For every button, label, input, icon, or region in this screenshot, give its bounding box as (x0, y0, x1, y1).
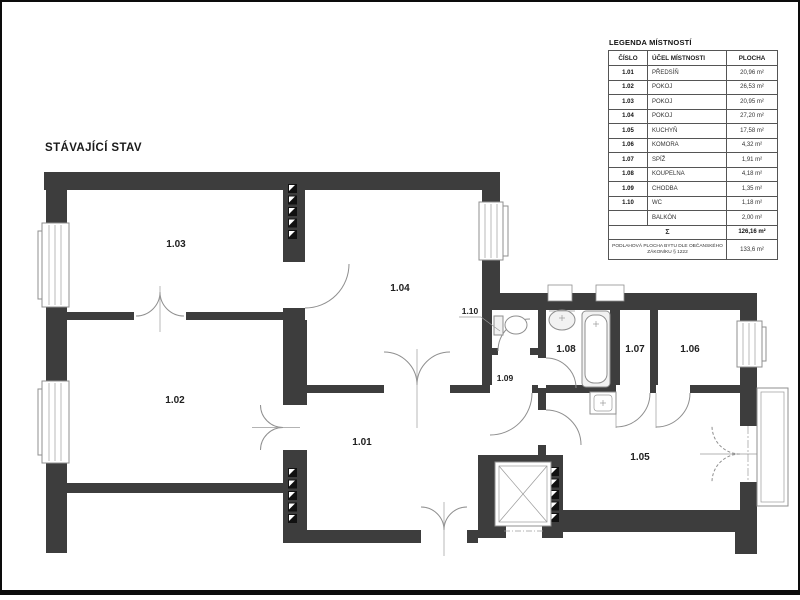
legend-row: 1.09 CHODBA 1,35 m² (609, 182, 778, 197)
room-label-103: 1.03 (166, 239, 186, 250)
room-label-105: 1.05 (630, 452, 650, 463)
legend-row: 1.08 KOUPELNA 4,18 m² (609, 167, 778, 182)
column-header-cislo: ČÍSLO (609, 51, 648, 66)
balcony-outline (757, 388, 788, 506)
wall-segment (538, 445, 546, 455)
window-icon (38, 223, 69, 307)
room-label-102: 1.02 (165, 395, 185, 406)
floorplan-page: STÁVAJÍCÍ STAV (0, 0, 800, 600)
footer-label: PODLAHOVÁ PLOCHA BYTU DLE OBČANSKÉHO ZÁK… (609, 240, 727, 260)
legend-sum-row: Σ 126,16 m² (609, 225, 778, 240)
chimney-flue-icon (288, 184, 297, 239)
legend-header-row: ČÍSLO ÚČEL MÍSTNOSTI PLOCHA (609, 51, 778, 66)
column-header-plocha: PLOCHA (727, 51, 778, 66)
sum-label: Σ (609, 225, 727, 240)
room-label-108: 1.08 (556, 344, 576, 355)
bathtub-icon (582, 311, 610, 387)
room-label-107: 1.07 (625, 344, 645, 355)
room-label-106: 1.06 (680, 344, 700, 355)
room-label-110: 1.10 (462, 306, 479, 316)
wall-segment (650, 310, 658, 393)
legend-row: BALKÓN 2,00 m² (609, 211, 778, 226)
legend-row: 1.01 PŘEDSÍŇ 20,96 m² (609, 66, 778, 81)
legend-table: ČÍSLO ÚČEL MÍSTNOSTI PLOCHA 1.01 PŘEDSÍŇ… (608, 50, 778, 260)
legend-footer-row: PODLAHOVÁ PLOCHA BYTU DLE OBČANSKÉHO ZÁK… (609, 240, 778, 260)
kitchen-sink-icon (590, 392, 616, 414)
elevator-icon (495, 462, 551, 531)
window-icon (38, 381, 69, 463)
legend-row: 1.10 WC 1,18 m² (609, 196, 778, 211)
wall-segment (44, 172, 500, 190)
legend-row: 1.02 POKOJ 26,53 m² (609, 80, 778, 95)
sum-value: 126,16 m² (727, 225, 778, 240)
legend-title: LEGENDA MÍSTNOSTÍ (609, 38, 768, 47)
toilet-icon (494, 316, 527, 335)
footer-value: 133,6 m² (727, 240, 778, 260)
wall-segment (545, 510, 757, 532)
room-label-109: 1.09 (497, 373, 514, 383)
wall-segment (735, 510, 757, 554)
sink-icon (549, 310, 575, 330)
legend-panel: LEGENDA MÍSTNOSTÍ ČÍSLO ÚČEL MÍSTNOSTI P… (608, 38, 768, 260)
room-label-104: 1.04 (390, 283, 410, 294)
wall-segment (610, 310, 620, 393)
legend-row: 1.05 KUCHYŇ 17,58 m² (609, 124, 778, 139)
legend-row: 1.06 KOMORA 4,32 m² (609, 138, 778, 153)
window-icon (737, 321, 766, 367)
room-label-101: 1.01 (352, 437, 372, 448)
wall-segment (538, 393, 546, 410)
column-header-ucel: ÚČEL MÍSTNOSTI (648, 51, 727, 66)
legend-row: 1.03 POKOJ 20,95 m² (609, 95, 778, 110)
chimney-flue-icon (288, 468, 297, 523)
legend-row: 1.07 SPÍŽ 1,91 m² (609, 153, 778, 168)
window-icon (479, 202, 508, 260)
wall-segment (46, 483, 283, 493)
legend-row: 1.04 POKOJ 27,20 m² (609, 109, 778, 124)
wall-segment (482, 310, 492, 393)
